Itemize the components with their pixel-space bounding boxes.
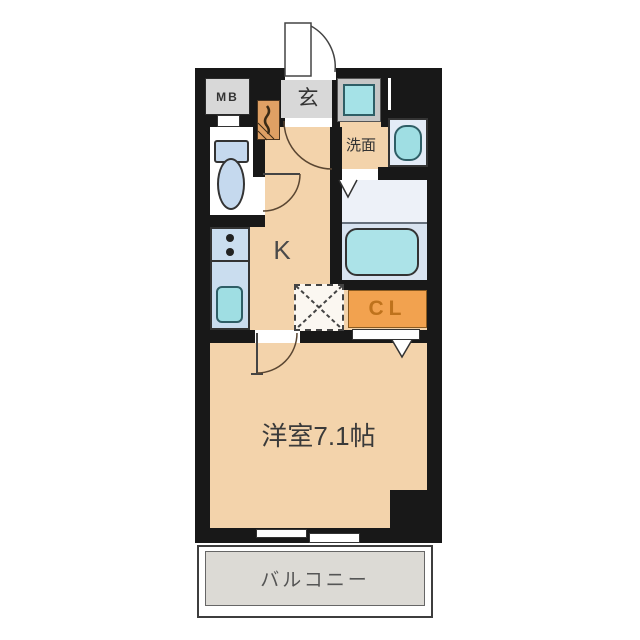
toilet-bowl: [217, 158, 245, 210]
bathtub: [345, 228, 419, 276]
genkan-door-opening: [285, 118, 332, 127]
kitchen-label: K: [262, 234, 302, 266]
wall-notch-bottom-right: [390, 490, 442, 543]
washbasin-bowl: [394, 125, 422, 161]
toilet-door-opening: [253, 177, 265, 215]
shoe-cabinet: [257, 100, 280, 140]
wall-left: [195, 68, 210, 543]
washroom-label: 洗面: [335, 133, 387, 155]
bathroom-floor-upper: [342, 180, 427, 222]
kitchen-stove-divider: [212, 260, 248, 262]
window-panel-left: [256, 529, 307, 538]
closet-sliding-door: [352, 329, 420, 340]
washing-machine-pan: [343, 84, 375, 116]
entrance-label: 玄: [283, 80, 333, 114]
bathroom-door-opening: [342, 169, 378, 180]
entrance-door-swing-arc: [311, 26, 335, 72]
refrigerator-space: [294, 284, 344, 331]
stove-burner-dot-1: [226, 234, 234, 242]
stove-burner-dot-2: [226, 248, 234, 256]
pipe-space-line: [388, 78, 391, 110]
window-panel-right: [309, 533, 360, 543]
closet-label: CL: [369, 297, 407, 321]
meter-box-label: MB: [205, 78, 250, 115]
wall-bath-bottom: [330, 280, 442, 290]
kitchen-sink: [216, 286, 243, 323]
balcony-deck: バルコニー: [205, 551, 425, 606]
wall-washroom-bath: [378, 167, 442, 180]
meter-box-step: [217, 115, 240, 127]
main-room-label: 洋室7.1帖: [210, 416, 427, 452]
balcony-label: バルコニー: [260, 565, 370, 592]
floorplan-canvas: CL バルコニー MB 玄 洗面 K 洋室7.1帖: [0, 0, 640, 640]
wall-toilet-bottom: [195, 215, 265, 227]
wall-right: [427, 68, 442, 543]
closet-box: CL: [348, 290, 427, 328]
entrance-door-opening: [285, 68, 336, 80]
mainroom-door-opening: [255, 330, 300, 343]
